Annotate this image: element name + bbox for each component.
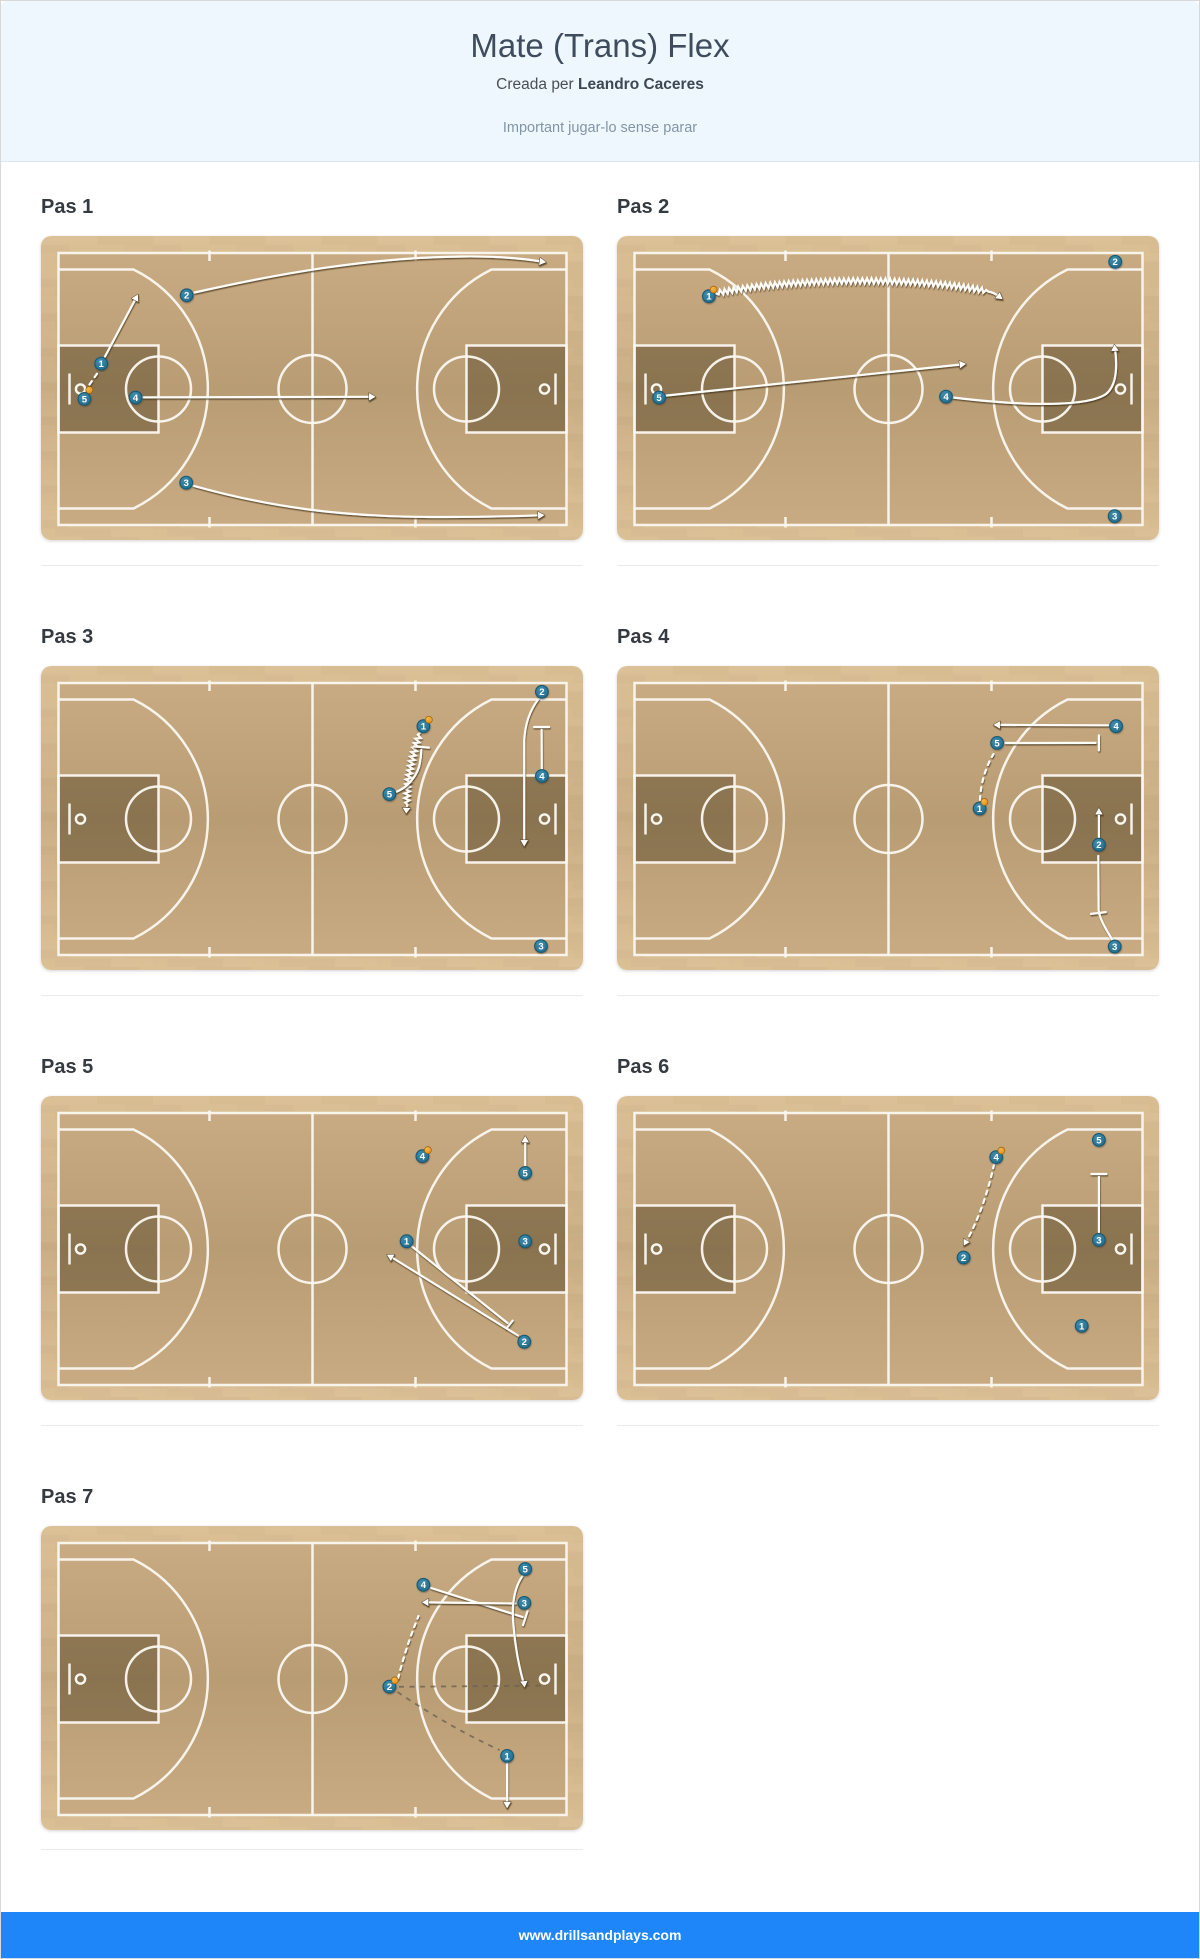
svg-text:4: 4 — [1113, 722, 1119, 733]
svg-text:4: 4 — [421, 1580, 427, 1591]
svg-text:3: 3 — [538, 942, 543, 953]
svg-text:2: 2 — [961, 1253, 966, 1264]
svg-text:3: 3 — [523, 1237, 528, 1248]
svg-text:5: 5 — [1096, 1135, 1102, 1146]
svg-text:5: 5 — [523, 1564, 529, 1575]
svg-text:2: 2 — [522, 1337, 527, 1348]
svg-text:5: 5 — [82, 394, 88, 405]
svg-text:1: 1 — [99, 359, 105, 370]
svg-text:5: 5 — [523, 1168, 529, 1179]
svg-text:2: 2 — [1113, 257, 1118, 268]
svg-text:1: 1 — [404, 1237, 410, 1248]
svg-text:4: 4 — [539, 771, 545, 782]
svg-text:1: 1 — [1079, 1321, 1085, 1332]
svg-text:2: 2 — [387, 1682, 392, 1693]
svg-text:3: 3 — [1112, 512, 1117, 523]
svg-text:3: 3 — [1112, 942, 1117, 953]
svg-text:4: 4 — [133, 393, 139, 404]
svg-text:5: 5 — [387, 790, 393, 801]
svg-text:2: 2 — [539, 687, 544, 698]
svg-text:3: 3 — [184, 478, 189, 489]
svg-text:1: 1 — [977, 804, 983, 815]
svg-text:1: 1 — [706, 292, 712, 303]
svg-text:5: 5 — [994, 738, 1000, 749]
svg-text:4: 4 — [994, 1153, 1000, 1164]
svg-text:1: 1 — [504, 1751, 510, 1762]
svg-text:2: 2 — [184, 291, 189, 302]
svg-text:3: 3 — [522, 1598, 527, 1609]
svg-text:5: 5 — [656, 393, 662, 404]
svg-text:3: 3 — [1096, 1235, 1101, 1246]
svg-text:4: 4 — [420, 1152, 426, 1163]
svg-text:1: 1 — [421, 722, 427, 733]
svg-text:4: 4 — [943, 392, 949, 403]
svg-text:2: 2 — [1096, 840, 1101, 851]
